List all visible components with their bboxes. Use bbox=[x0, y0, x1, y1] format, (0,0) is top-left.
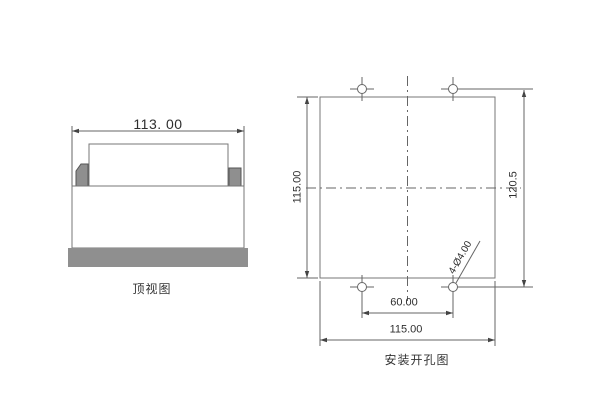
hole-spacing-dimension: 60.00 bbox=[390, 298, 418, 309]
drawing-canvas: 113. 00 顶视图 115.00 120.5 60.00 115.00 4-… bbox=[0, 0, 600, 400]
bottom-width-dimension: 115.00 bbox=[390, 325, 423, 336]
top-view-linework bbox=[68, 126, 248, 267]
arrowhead bbox=[72, 129, 79, 133]
arrowhead bbox=[522, 90, 526, 97]
arrowhead bbox=[446, 311, 453, 315]
arrowhead bbox=[305, 271, 309, 278]
left-clip bbox=[76, 164, 88, 186]
top-view-caption: 顶视图 bbox=[132, 283, 171, 295]
right-clip bbox=[229, 168, 241, 186]
base-bar bbox=[68, 248, 248, 267]
arrowhead bbox=[237, 129, 244, 133]
left-height-dimension: 115.00 bbox=[293, 171, 304, 204]
device-inner-panel bbox=[89, 144, 228, 186]
device-body bbox=[72, 186, 244, 248]
right-height-dimension: 120.5 bbox=[509, 171, 520, 199]
arrowhead bbox=[488, 338, 495, 342]
arrowhead bbox=[362, 311, 369, 315]
arrowhead bbox=[320, 338, 327, 342]
arrowhead bbox=[522, 280, 526, 287]
arrowhead bbox=[305, 97, 309, 104]
top-view-width-dimension: 113. 00 bbox=[133, 117, 182, 131]
mounting-hole-caption: 安装开孔图 bbox=[384, 354, 449, 366]
